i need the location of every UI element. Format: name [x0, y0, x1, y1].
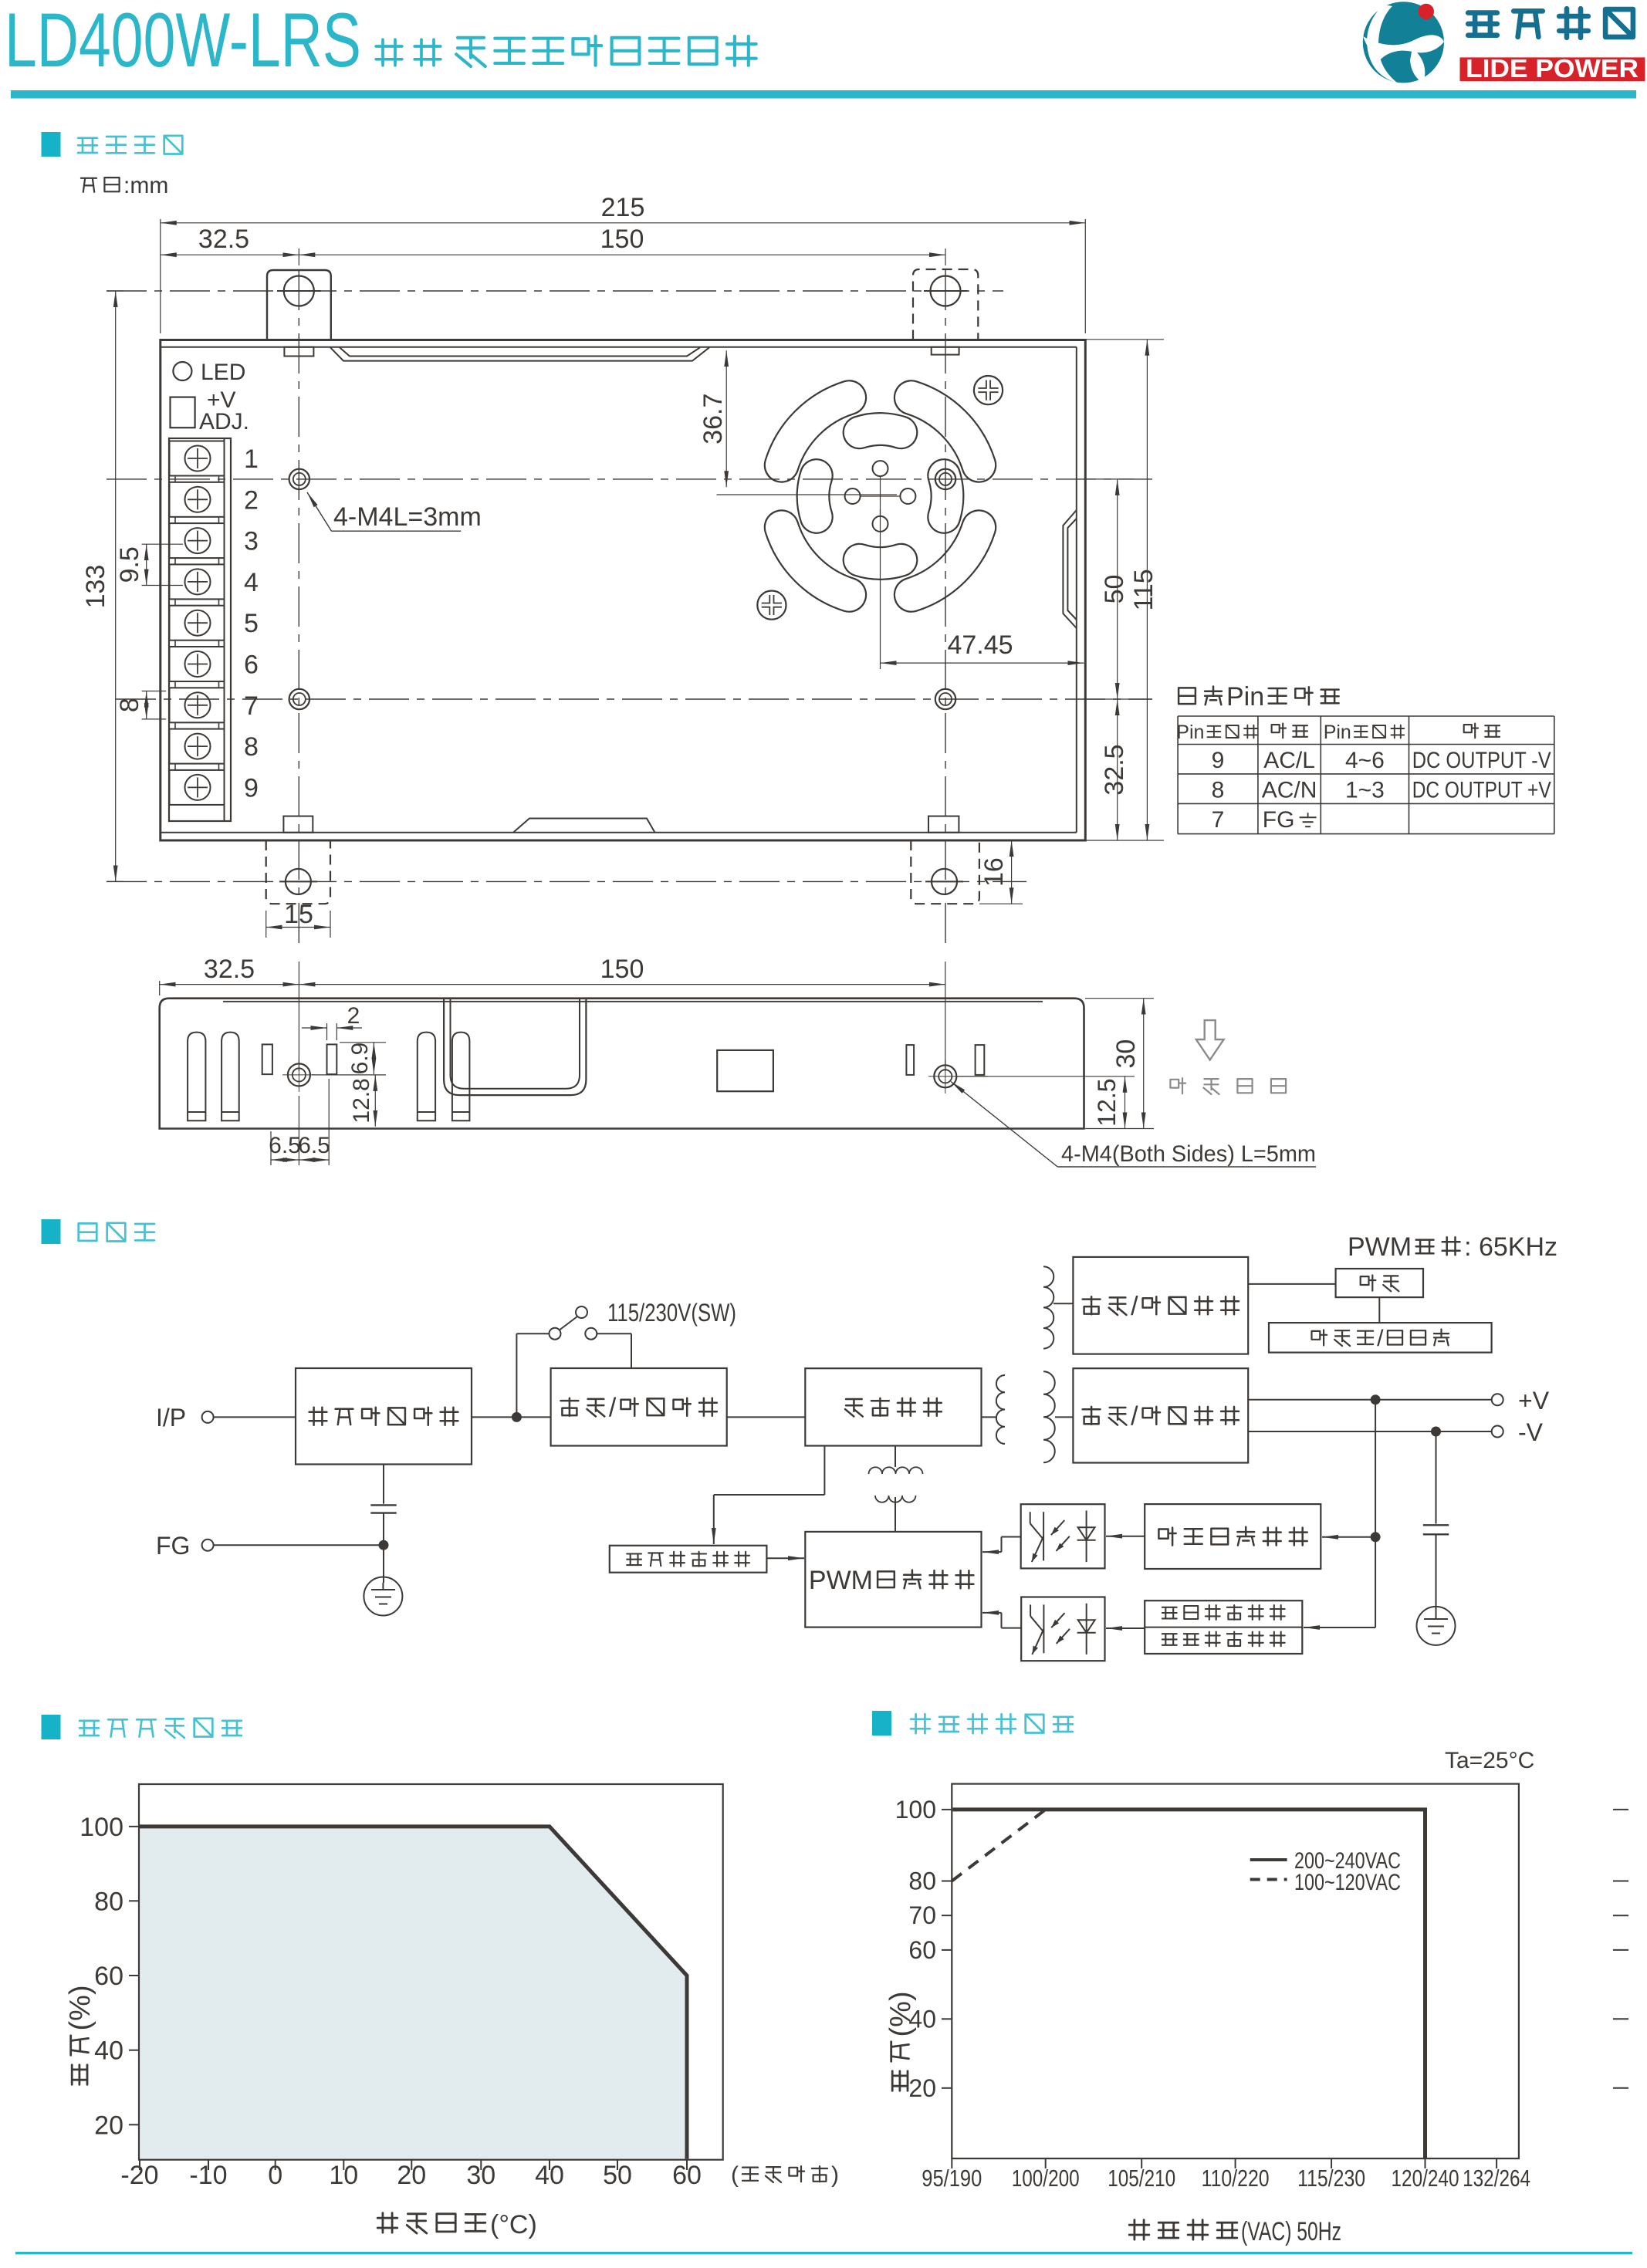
svg-text:4~6: 4~6: [1345, 748, 1385, 773]
svg-text:/: /: [1377, 1326, 1384, 1351]
svg-text:(°C): (°C): [490, 2210, 537, 2239]
svg-text:6.5: 6.5: [298, 1133, 330, 1158]
svg-text:12.5: 12.5: [1093, 1078, 1121, 1126]
svg-text::mm: :mm: [123, 173, 168, 198]
svg-text:60: 60: [94, 1962, 123, 1991]
svg-text:DC OUTPUT -V: DC OUTPUT -V: [1412, 748, 1551, 773]
svg-text:215: 215: [601, 193, 645, 222]
svg-text:95/190: 95/190: [922, 2165, 982, 2192]
svg-text:-10: -10: [189, 2161, 227, 2190]
svg-text:32.5: 32.5: [204, 955, 255, 984]
svg-text:150: 150: [600, 955, 644, 984]
svg-text:1: 1: [244, 444, 259, 474]
svg-text:60: 60: [908, 1936, 936, 1964]
svg-text:9: 9: [244, 773, 259, 803]
svg-text:115/230V(SW): 115/230V(SW): [607, 1299, 736, 1327]
svg-text:Ta=25°C: Ta=25°C: [1445, 1748, 1534, 1773]
svg-text:32.5: 32.5: [198, 225, 249, 254]
svg-text:LED: LED: [201, 360, 245, 385]
svg-text:(%): (%): [64, 1985, 96, 2030]
svg-text:4-M4(Both Sides) L=5mm: 4-M4(Both Sides) L=5mm: [1061, 1141, 1316, 1167]
svg-text:32.5: 32.5: [1100, 744, 1129, 795]
svg-text:ADJ.: ADJ.: [199, 409, 249, 434]
svg-text:PWM: PWM: [1348, 1232, 1412, 1262]
svg-text:15: 15: [284, 900, 313, 929]
svg-text:Pin: Pin: [1324, 722, 1351, 743]
svg-text:9: 9: [1212, 748, 1225, 773]
svg-text:(VAC) 50Hz: (VAC) 50Hz: [1241, 2217, 1341, 2246]
svg-text:2: 2: [347, 1003, 360, 1029]
svg-text:DC OUTPUT +V: DC OUTPUT +V: [1412, 778, 1551, 803]
svg-text:(: (: [731, 2162, 739, 2188]
svg-text:120/240: 120/240: [1392, 2165, 1459, 2192]
svg-text:60: 60: [672, 2161, 702, 2190]
svg-text:6.9: 6.9: [347, 1043, 373, 1075]
svg-text:115/230: 115/230: [1297, 2165, 1365, 2192]
svg-text:4: 4: [244, 568, 259, 597]
svg-text:6.5: 6.5: [269, 1133, 301, 1158]
svg-text:115: 115: [1129, 569, 1158, 610]
svg-text:47.45: 47.45: [947, 630, 1013, 660]
svg-text:Pin: Pin: [1226, 682, 1264, 711]
svg-text:9.5: 9.5: [115, 546, 144, 583]
svg-text:8: 8: [1212, 778, 1225, 803]
svg-text:8: 8: [115, 698, 144, 712]
svg-text:/: /: [609, 1394, 617, 1423]
svg-text:(%): (%): [884, 1991, 917, 2036]
svg-text:8: 8: [244, 732, 259, 762]
svg-text:50: 50: [1100, 575, 1129, 604]
svg-text:7: 7: [244, 691, 259, 721]
svg-text:100: 100: [895, 1796, 936, 1824]
svg-text:20: 20: [94, 2111, 123, 2140]
svg-text:AC/L: AC/L: [1263, 748, 1315, 773]
svg-text:40: 40: [94, 2036, 123, 2066]
svg-text:100/200: 100/200: [1012, 2165, 1080, 2192]
svg-text:100: 100: [79, 1813, 123, 1842]
svg-text:70: 70: [908, 1901, 936, 1929]
svg-text:4-M4L=3mm: 4-M4L=3mm: [333, 502, 482, 532]
svg-text:50: 50: [603, 2161, 632, 2190]
svg-text:+V: +V: [1518, 1387, 1550, 1415]
svg-text:LIDE POWER: LIDE POWER: [1466, 54, 1639, 83]
svg-text:40: 40: [535, 2161, 564, 2190]
svg-text:0: 0: [268, 2161, 282, 2190]
svg-text:132/264: 132/264: [1463, 2165, 1530, 2192]
svg-text:16: 16: [979, 857, 1009, 887]
svg-text:/: /: [1131, 1402, 1138, 1431]
svg-text:12.8: 12.8: [349, 1078, 374, 1123]
svg-text:20: 20: [397, 2161, 426, 2190]
svg-text:FG: FG: [1263, 807, 1295, 833]
svg-text:30: 30: [1111, 1039, 1141, 1069]
svg-text:1~3: 1~3: [1345, 778, 1385, 803]
svg-text:150: 150: [600, 225, 644, 254]
svg-text:36.7: 36.7: [698, 394, 728, 444]
svg-text:: 65KHz: : 65KHz: [1464, 1232, 1557, 1262]
svg-text:100~120VAC: 100~120VAC: [1294, 1870, 1401, 1895]
svg-text:80: 80: [94, 1887, 123, 1916]
svg-text:3: 3: [244, 527, 259, 556]
svg-text:105/210: 105/210: [1108, 2165, 1175, 2192]
svg-text:): ): [831, 2162, 839, 2188]
svg-text:/: /: [1131, 1292, 1138, 1321]
svg-text:20: 20: [908, 2074, 936, 2102]
svg-text:AC/N: AC/N: [1262, 778, 1317, 803]
svg-text:2: 2: [244, 485, 259, 515]
svg-text:6: 6: [244, 651, 259, 680]
svg-text:Pin: Pin: [1176, 722, 1204, 743]
svg-text:PWM: PWM: [809, 1566, 873, 1595]
svg-text:FG: FG: [156, 1532, 190, 1560]
svg-text:I/P: I/P: [156, 1404, 186, 1431]
svg-text:133: 133: [81, 565, 110, 609]
svg-text:30: 30: [466, 2161, 495, 2190]
svg-text:-V: -V: [1518, 1418, 1544, 1446]
svg-text:LD400W-LRS: LD400W-LRS: [5, 0, 361, 83]
svg-text:110/220: 110/220: [1202, 2165, 1270, 2192]
svg-text:-20: -20: [120, 2161, 158, 2190]
svg-text:80: 80: [908, 1867, 936, 1895]
svg-text:5: 5: [244, 609, 259, 638]
svg-text:10: 10: [329, 2161, 358, 2190]
svg-text:7: 7: [1212, 807, 1225, 833]
